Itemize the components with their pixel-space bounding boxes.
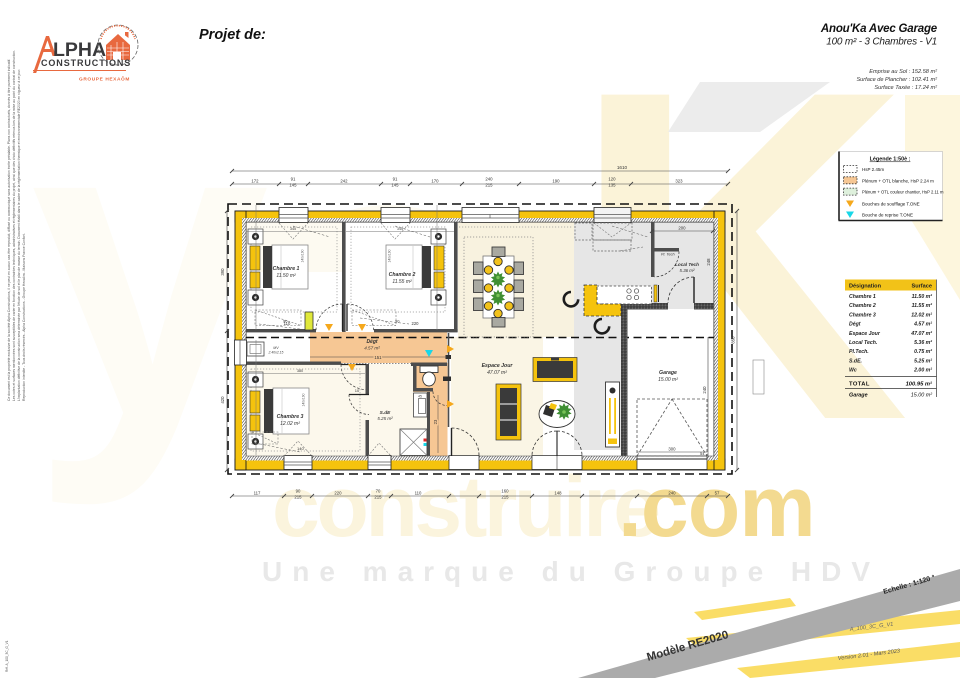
svg-text:Local Tech.: Local Tech. (849, 340, 877, 346)
svg-text:160: 160 (501, 489, 509, 494)
svg-text:47.07 m²: 47.07 m² (910, 331, 932, 337)
svg-text:170: 170 (431, 179, 439, 184)
svg-text:15.00 m²: 15.00 m² (658, 377, 678, 383)
svg-text:Projet de:: Projet de: (199, 27, 266, 43)
svg-text:0.75 m²: 0.75 m² (914, 349, 932, 355)
svg-text:Chambre 1: Chambre 1 (849, 294, 876, 300)
svg-text:Emprise au Sol : 152.58 m²: Emprise au Sol : 152.58 m² (869, 69, 938, 75)
svg-text:Surface: Surface (911, 284, 932, 290)
svg-text:Espace Jour: Espace Jour (482, 363, 514, 369)
svg-text:Les cotes et surfaces mentionn: Les cotes et surfaces mentionnées sont s… (12, 50, 16, 401)
svg-text:323: 323 (675, 179, 683, 184)
svg-text:Pl. Tech: Pl. Tech (661, 253, 675, 257)
svg-text:5.25 m²: 5.25 m² (377, 416, 393, 421)
svg-text:145: 145 (289, 183, 297, 188)
svg-text:45: 45 (418, 395, 422, 399)
svg-text:135: 135 (608, 183, 616, 188)
svg-text:248: 248 (706, 258, 711, 266)
svg-text:S.dE.: S.dE. (849, 358, 862, 364)
svg-text:2.40x2.15: 2.40x2.15 (268, 351, 284, 355)
svg-text:HsP 2.45m: HsP 2.45m (862, 167, 884, 172)
svg-text:Légende 1:50è :: Légende 1:50è : (870, 157, 911, 163)
svg-text:91: 91 (291, 177, 296, 182)
svg-text:12.02 m²: 12.02 m² (280, 421, 300, 427)
svg-text:91: 91 (393, 177, 398, 182)
svg-text:380: 380 (297, 369, 303, 373)
svg-text:120: 120 (608, 177, 616, 182)
svg-text:15.00 m²: 15.00 m² (911, 393, 932, 399)
svg-text:300: 300 (668, 447, 676, 452)
svg-text:240: 240 (702, 386, 707, 394)
svg-text:TOTAL: TOTAL (849, 382, 870, 388)
svg-text:Plénum + OTL couleur chantier,: Plénum + OTL couleur chantier, HsP 2.11 … (862, 190, 944, 195)
svg-text:140x190: 140x190 (388, 249, 392, 262)
svg-text:11.50 m²: 11.50 m² (912, 294, 933, 300)
svg-text:1610: 1610 (617, 165, 628, 170)
svg-text:117: 117 (254, 491, 261, 496)
svg-text:Chambre 3: Chambre 3 (277, 414, 304, 420)
svg-text:54: 54 (700, 451, 705, 456)
svg-text:345: 345 (290, 227, 296, 231)
svg-text:Réf. A_100_3C_G_V1: Réf. A_100_3C_G_V1 (5, 640, 9, 672)
svg-text:70: 70 (376, 489, 381, 494)
svg-text:11.50 m²: 11.50 m² (276, 273, 296, 279)
svg-text:151: 151 (374, 355, 382, 360)
svg-text:5.36 m²: 5.36 m² (914, 340, 932, 346)
svg-text:Anou'Ka Avec Garage: Anou'Ka Avec Garage (820, 23, 938, 35)
svg-text:23: 23 (433, 419, 438, 424)
svg-text:215: 215 (485, 183, 493, 188)
svg-text:215: 215 (294, 495, 302, 500)
svg-text:90: 90 (395, 319, 400, 324)
svg-text:100 m² - 3 Chambres - V1: 100 m² - 3 Chambres - V1 (826, 37, 937, 48)
svg-text:L'implantation définitive de l: L'implantation définitive de la construc… (17, 69, 21, 401)
svg-text:215: 215 (374, 495, 382, 500)
svg-text:242: 242 (340, 179, 348, 184)
svg-text:145: 145 (391, 183, 399, 188)
svg-text:Chambre 1: Chambre 1 (273, 266, 300, 272)
svg-text:240: 240 (668, 491, 676, 496)
svg-text:Une marque du Groupe HDV: Une marque du Groupe HDV (262, 556, 880, 587)
svg-text:Dégt: Dégt (849, 322, 861, 328)
svg-text:190: 190 (552, 179, 560, 184)
svg-text:4.57 m²: 4.57 m² (364, 346, 380, 351)
svg-text:Wc: Wc (849, 368, 857, 374)
svg-text:Garage: Garage (659, 370, 677, 376)
svg-text:240: 240 (485, 177, 493, 182)
svg-text:Garage: Garage (849, 393, 868, 399)
svg-text:11.55 m²: 11.55 m² (392, 279, 412, 285)
svg-text:90: 90 (296, 489, 301, 494)
svg-text:Chambre 3: Chambre 3 (849, 312, 876, 318)
svg-text:Surface de Plancher : 102.41 m: Surface de Plancher : 102.41 m² (856, 77, 938, 83)
svg-text:11.55 m²: 11.55 m² (912, 303, 933, 309)
svg-text:2.00 m²: 2.00 m² (913, 368, 932, 374)
svg-text:850: 850 (731, 336, 736, 344)
svg-text:10: 10 (355, 388, 360, 393)
svg-text:Pl.Tech.: Pl.Tech. (849, 349, 869, 355)
svg-text:420: 420 (220, 396, 225, 404)
svg-text:Local Tech: Local Tech (675, 262, 699, 267)
svg-text:148: 148 (554, 491, 562, 496)
svg-text:5.25 m²: 5.25 m² (914, 358, 932, 364)
svg-text:Dégt: Dégt (366, 339, 377, 345)
svg-text:4.57 m²: 4.57 m² (913, 322, 932, 328)
svg-text:Désignation: Désignation (849, 284, 882, 290)
svg-text:140x190: 140x190 (302, 393, 306, 406)
svg-text:MV: MV (273, 346, 279, 350)
svg-text:Chambre 2: Chambre 2 (389, 272, 416, 278)
svg-text:5.36 m²: 5.36 m² (680, 268, 695, 273)
svg-text:CONSTRUCTIONS: CONSTRUCTIONS (41, 58, 131, 68)
svg-text:172: 172 (251, 179, 259, 184)
svg-text:200: 200 (678, 226, 686, 231)
svg-text:215: 215 (501, 495, 509, 500)
svg-text:Surface Taxée : 17.24 m²: Surface Taxée : 17.24 m² (874, 85, 938, 91)
svg-text:220: 220 (334, 491, 342, 496)
svg-text:110: 110 (415, 491, 422, 496)
svg-text:47.07 m²: 47.07 m² (487, 370, 507, 376)
svg-text:140: 140 (297, 446, 304, 451)
svg-text:Ce document est la propriété e: Ce document est la propriété exclusive d… (7, 59, 11, 401)
svg-text:12.02 m²: 12.02 m² (911, 312, 932, 318)
svg-text:90: 90 (283, 319, 288, 324)
svg-text:Reproduction interdite - Tous: Reproduction interdite - Tous droits rés… (22, 233, 26, 401)
svg-text:Bouches de soufflage T.ONE: Bouches de soufflage T.ONE (862, 201, 920, 206)
svg-text:57: 57 (715, 491, 720, 496)
svg-text:Plénum + OTL blanche, HsP 2.24: Plénum + OTL blanche, HsP 2.24 m (862, 178, 934, 183)
svg-text:Bouche de reprise T.ONE: Bouche de reprise T.ONE (862, 212, 913, 217)
svg-text:Espace Jour: Espace Jour (849, 331, 881, 337)
svg-text:Chambre 2: Chambre 2 (849, 303, 876, 309)
svg-text:220: 220 (412, 321, 420, 326)
svg-text:390: 390 (220, 268, 225, 276)
svg-text:140x190: 140x190 (301, 249, 305, 262)
svg-text:100.95 m²: 100.95 m² (906, 381, 933, 388)
